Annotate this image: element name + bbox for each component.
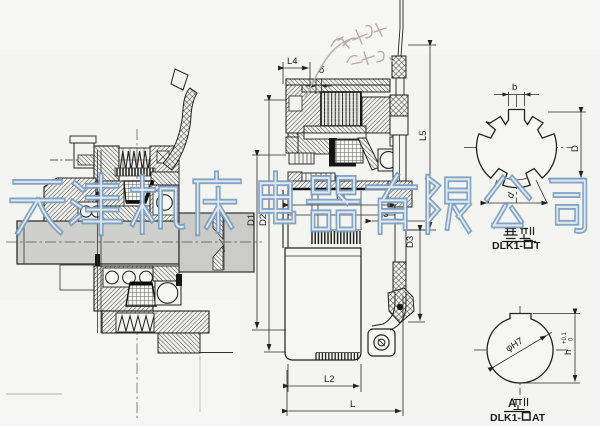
svg-text:D2: D2 [258,214,269,226]
svg-text:D1: D1 [246,214,257,226]
svg-text:DLK1-: DLK1- [492,240,523,252]
svg-text:h: h [563,350,574,355]
svg-text:D: D [570,145,581,152]
svg-text:DLK1-: DLK1- [490,412,521,424]
svg-text:D3: D3 [405,236,416,248]
svg-text:AT: AT [532,412,546,424]
svg-text:+0.1: +0.1 [562,331,568,344]
svg-text:L4: L4 [287,56,298,67]
svg-text:b: b [512,82,517,93]
svg-text:L: L [350,399,355,410]
svg-text:T: T [534,240,541,252]
svg-text:L5: L5 [418,130,429,141]
svg-text:L2: L2 [324,374,335,385]
